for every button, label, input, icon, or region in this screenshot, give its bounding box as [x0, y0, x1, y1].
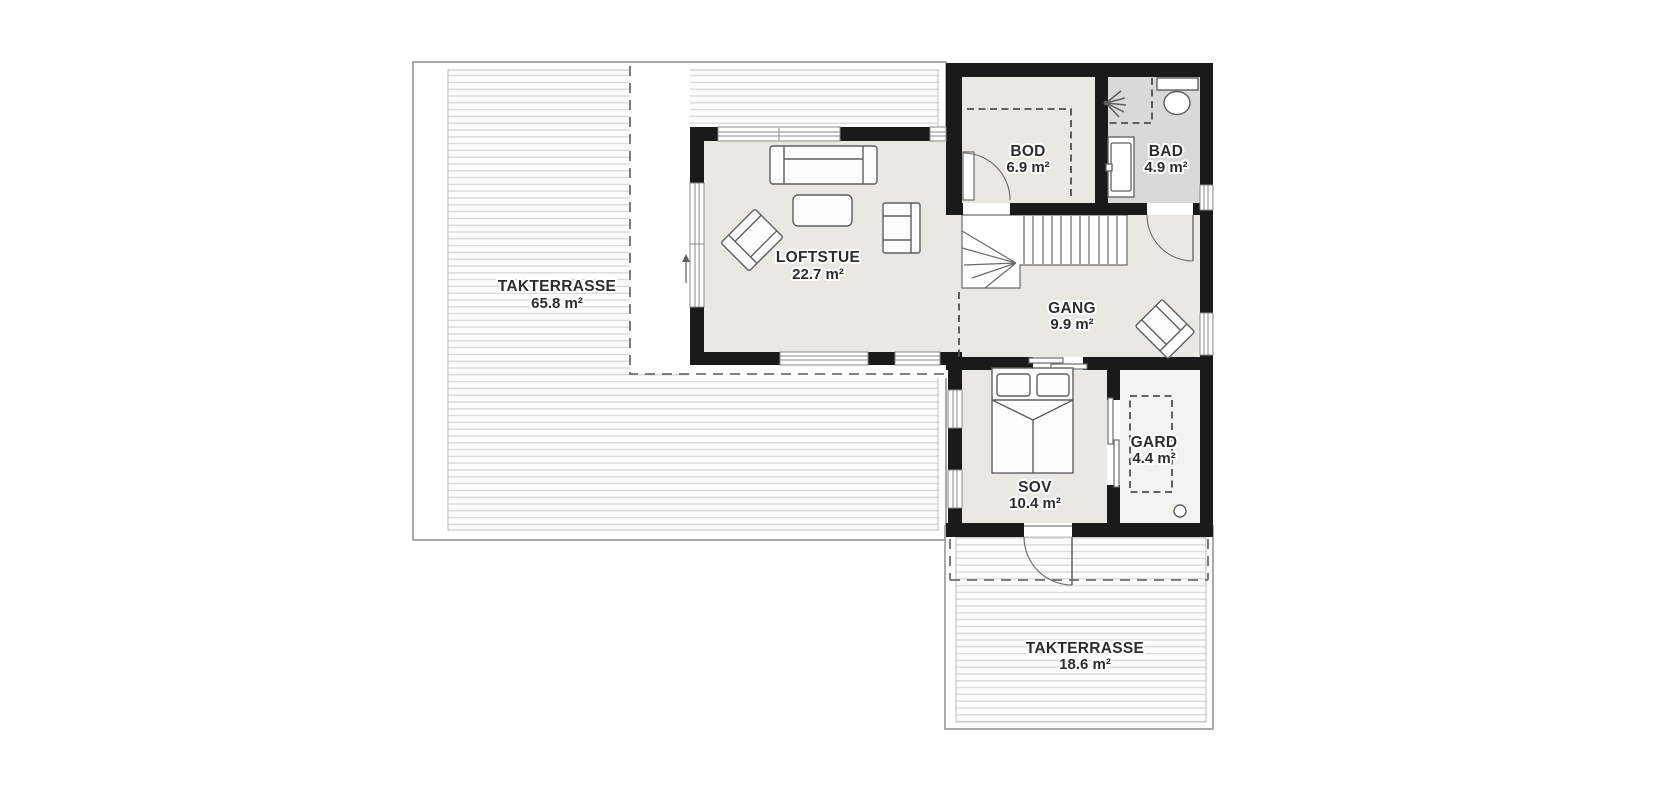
gard-post-icon: [1174, 505, 1186, 517]
window-sov-left-2: [948, 470, 962, 508]
window-loftstue-bottom-1: [780, 352, 868, 365]
bed: [992, 368, 1073, 473]
window-loftstue-top: [718, 127, 840, 141]
label-gard: GARD: [1131, 434, 1178, 451]
window-loftstue-top-small: [930, 127, 946, 141]
window-loftstue-bottom-2: [895, 352, 940, 365]
terrace-void: [630, 64, 690, 374]
label-gang-area: 9.9 m²: [1050, 316, 1093, 333]
window-gang-right-1: [1200, 185, 1213, 210]
label-loftstue-area: 22.7 m²: [792, 266, 844, 283]
window-loftstue-left: [690, 183, 704, 307]
label-loftstue: LOFTSTUE: [776, 249, 860, 266]
terrace-lower-decking: [956, 537, 1206, 722]
coffee-table: [793, 195, 852, 226]
bod-floor: [962, 77, 1095, 203]
terrace-lower: [945, 526, 1213, 729]
floor-plan: TAKTERRASSE 65.8 m² LOFTSTUE 22.7 m² BOD…: [0, 0, 1670, 800]
window-sov-left-1: [948, 390, 962, 428]
floor-plan-page: TAKTERRASSE 65.8 m² LOFTSTUE 22.7 m² BOD…: [0, 0, 1670, 800]
label-bod: BOD: [1010, 143, 1045, 160]
armchair-loftstue-right: [883, 203, 920, 253]
label-takterrasse-lower-area: 18.6 m²: [1059, 656, 1111, 673]
label-sov: SOV: [1018, 479, 1052, 496]
label-gard-area: 4.4 m²: [1132, 450, 1175, 467]
label-takterrasse-left: TAKTERRASSE: [498, 278, 616, 295]
sink-vanity-icon: [1106, 137, 1134, 197]
label-takterrasse-left-area: 65.8 m²: [531, 295, 583, 312]
label-gang: GANG: [1048, 300, 1096, 317]
pillow: [997, 374, 1030, 396]
passage-floor: [946, 215, 962, 357]
sofa: [770, 146, 877, 184]
label-sov-area: 10.4 m²: [1009, 495, 1061, 512]
label-bad-area: 4.9 m²: [1144, 159, 1187, 176]
pillow: [1037, 374, 1069, 396]
label-takterrasse-lower: TAKTERRASSE: [1026, 640, 1144, 657]
label-bod-area: 6.9 m²: [1006, 159, 1049, 176]
sliding-door-gard: [1108, 398, 1119, 487]
window-gang-right-2: [1200, 313, 1213, 355]
label-bad: BAD: [1149, 143, 1183, 160]
